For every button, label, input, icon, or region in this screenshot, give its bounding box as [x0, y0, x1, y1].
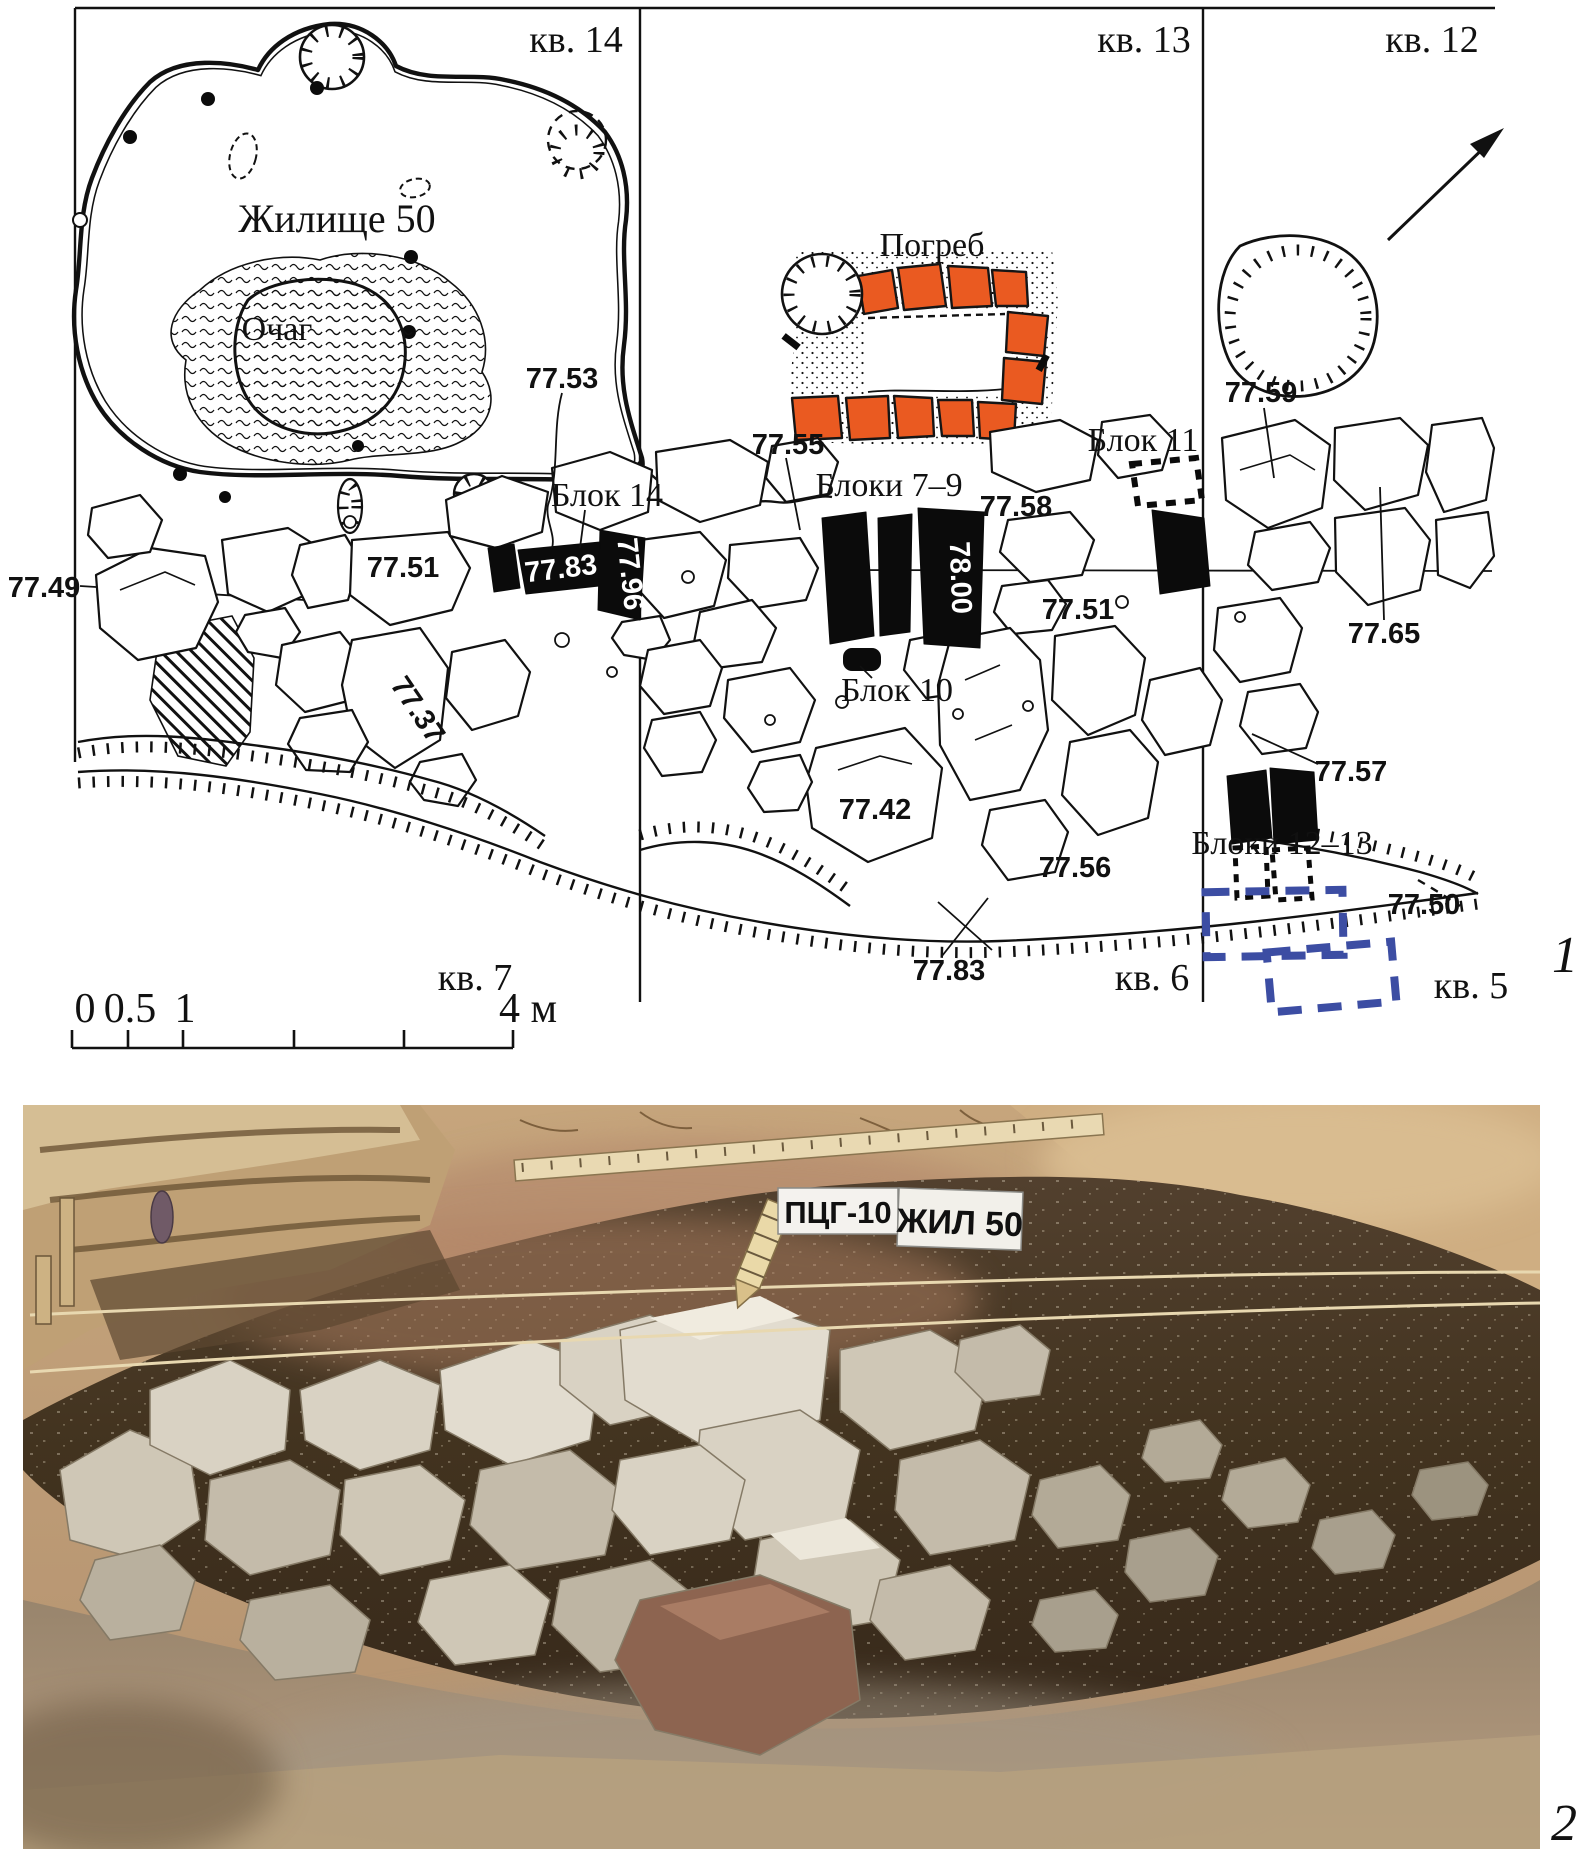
purple-object [151, 1191, 173, 1243]
cellar-area [781, 250, 1058, 446]
figure-part1-number: 1 [1552, 927, 1578, 984]
block-7-slab [822, 512, 874, 644]
scale-tick-1: 1 [175, 986, 196, 1032]
object-sign: ЖИЛ 50 [895, 1188, 1024, 1250]
elevation-77-58: 77.58 [980, 491, 1053, 523]
excavation-plan: кв. 14 кв. 13 кв. 12 кв. 7 кв. 6 кв. 5 Ж… [8, 8, 1578, 1048]
scale-tick-05: 0.5 [104, 986, 157, 1032]
stones-kv13 [938, 415, 1222, 880]
elevation-77-56: 77.56 [1039, 852, 1112, 884]
elevation-77-55: 77.55 [752, 429, 825, 461]
scale-tick-4m: 4 м [499, 986, 557, 1032]
figure-svg: кв. 14 кв. 13 кв. 12 кв. 7 кв. 6 кв. 5 Ж… [0, 0, 1578, 1849]
elevation-77-51b: 77.51 [1042, 594, 1115, 626]
block11-label: Блок 11 [1088, 422, 1199, 459]
block-8-slab [878, 514, 912, 636]
elevation-77-51a: 77.51 [367, 552, 440, 584]
scale-tick-0: 0 [75, 986, 96, 1032]
north-arrow-icon [1388, 128, 1504, 240]
stones-left [88, 495, 530, 806]
object-sign-text: ЖИЛ 50 [895, 1202, 1024, 1244]
site-sign-text: ПЦГ-10 [784, 1195, 891, 1230]
excavation-photo: ПЦГ-10 ЖИЛ 50 [0, 1090, 1560, 1849]
quad-label-kv12: кв. 12 [1385, 19, 1478, 61]
elevation-77-50: 77.50 [1388, 889, 1461, 921]
cellar-label: Погреб [880, 227, 985, 264]
elevation-77-57: 77.57 [1315, 756, 1388, 788]
blocks7-9-label: Блоки 7–9 [815, 467, 962, 504]
dwelling-label: Жилище 50 [238, 196, 435, 241]
figure-part2-number: 2 [1551, 1795, 1577, 1849]
quad-label-kv14: кв. 14 [529, 19, 622, 61]
elevation-77-59: 77.59 [1225, 377, 1298, 409]
hearth-label: Очаг [242, 311, 313, 348]
elevation-77-49: 77.49 [8, 572, 81, 604]
quad-label-kv6: кв. 6 [1115, 957, 1189, 999]
elevation-77-42: 77.42 [839, 794, 912, 826]
blocks12-13-label: Блоки 12–13 [1191, 825, 1372, 862]
elevation-77-53: 77.53 [526, 363, 599, 395]
elevation-78-00-block: 78.00 [943, 541, 978, 615]
block14-label: Блок 14 [551, 477, 663, 514]
block10-label: Блок 10 [841, 672, 953, 709]
hearth-area [171, 253, 491, 464]
block-11-slab [1152, 510, 1210, 594]
quad-label-kv5: кв. 5 [1434, 965, 1508, 1007]
quad-label-kv13: кв. 13 [1097, 19, 1190, 61]
pit-kv12 [1219, 236, 1378, 397]
cellar-interior [865, 312, 1008, 396]
figure-page: кв. 14 кв. 13 кв. 12 кв. 7 кв. 6 кв. 5 Ж… [0, 0, 1578, 1849]
site-sign: ПЦГ-10 [778, 1188, 898, 1234]
elevation-77-83-edge: 77.83 [913, 955, 986, 987]
stones-kv12 [1214, 418, 1494, 754]
elevation-77-65: 77.65 [1348, 618, 1421, 650]
